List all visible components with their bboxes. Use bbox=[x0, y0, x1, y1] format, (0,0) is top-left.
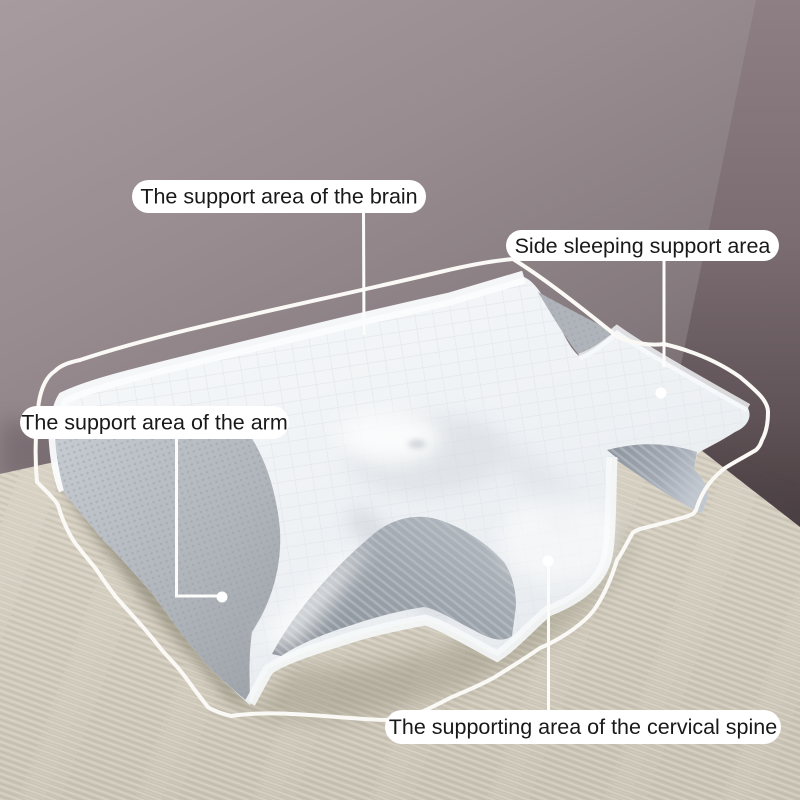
svg-text:Side sleeping support area: Side sleeping support area bbox=[515, 234, 771, 258]
svg-text:The supporting area of the cer: The supporting area of the cervical spin… bbox=[389, 715, 777, 739]
svg-text:The support area of the brain: The support area of the brain bbox=[140, 185, 417, 209]
svg-text:The support area of the arm: The support area of the arm bbox=[21, 411, 288, 435]
